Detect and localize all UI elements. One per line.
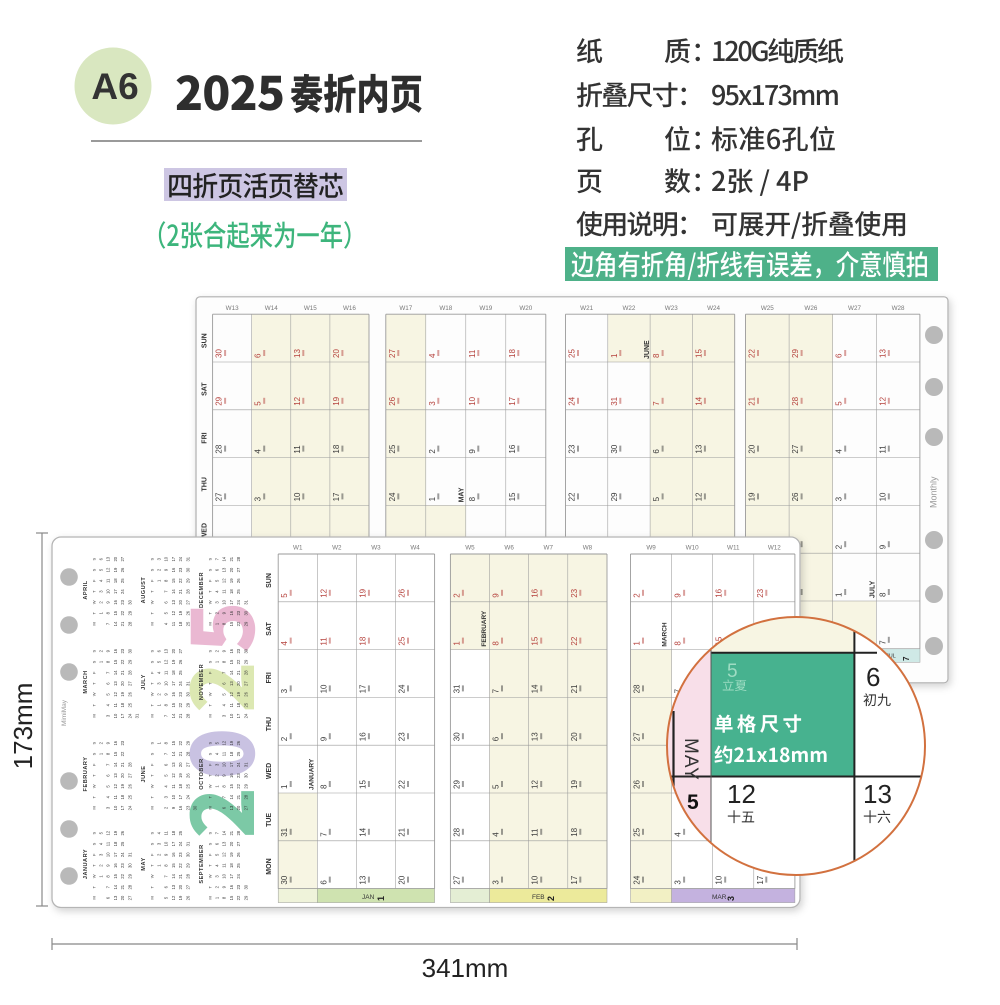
svg-text:30: 30 — [215, 349, 224, 358]
svg-text:18: 18 — [120, 794, 125, 799]
svg-text:12: 12 — [171, 610, 176, 615]
svg-text:25: 25 — [243, 702, 248, 707]
svg-text:25: 25 — [127, 794, 132, 799]
svg-text:18: 18 — [178, 621, 183, 626]
svg-text:5: 5 — [835, 401, 844, 406]
svg-text:S: S — [92, 832, 97, 835]
svg-text:12: 12 — [878, 396, 887, 405]
svg-text:15: 15 — [229, 621, 234, 626]
svg-text:18: 18 — [113, 841, 118, 846]
svg-text:S: S — [208, 568, 213, 571]
svg-text:17: 17 — [113, 852, 118, 857]
svg-text:22: 22 — [570, 636, 579, 645]
svg-text:28: 28 — [243, 794, 248, 799]
svg-text:29: 29 — [610, 492, 619, 501]
svg-text:14: 14 — [113, 621, 118, 626]
svg-text:M: M — [208, 896, 213, 899]
svg-text:1: 1 — [280, 784, 289, 789]
svg-text:21: 21 — [236, 794, 241, 799]
svg-text:27: 27 — [185, 599, 190, 604]
svg-text:2: 2 — [280, 736, 289, 741]
svg-text:M: M — [150, 622, 155, 625]
svg-text:21: 21 — [178, 589, 183, 594]
svg-text:22: 22 — [178, 740, 183, 745]
svg-text:22: 22 — [178, 578, 183, 583]
svg-text:M: M — [150, 714, 155, 717]
svg-text:20: 20 — [113, 556, 118, 561]
svg-text:13: 13 — [106, 556, 111, 561]
svg-text:19: 19 — [229, 852, 234, 857]
svg-text:1: 1 — [428, 496, 437, 501]
svg-text:11: 11 — [531, 828, 540, 837]
svg-text:11: 11 — [468, 349, 477, 358]
svg-text:27: 27 — [633, 732, 642, 741]
svg-text:20: 20 — [398, 875, 407, 884]
svg-text:19: 19 — [748, 492, 757, 501]
svg-text:5: 5 — [492, 784, 501, 789]
svg-text:15: 15 — [531, 636, 540, 645]
svg-text:24: 24 — [388, 492, 397, 501]
svg-text:15: 15 — [229, 659, 234, 664]
svg-text:18: 18 — [508, 349, 517, 358]
svg-text:18: 18 — [358, 636, 367, 645]
svg-text:29: 29 — [185, 578, 190, 583]
svg-text:26: 26 — [236, 852, 241, 857]
svg-text:S: S — [92, 558, 97, 561]
svg-text:23: 23 — [120, 648, 125, 653]
svg-text:24: 24 — [178, 841, 183, 846]
svg-text:9: 9 — [674, 593, 683, 598]
svg-text:27: 27 — [236, 841, 241, 846]
svg-text:29: 29 — [185, 740, 190, 745]
svg-text:20: 20 — [178, 884, 183, 889]
svg-text:10: 10 — [293, 492, 302, 501]
svg-text:W20: W20 — [519, 305, 532, 312]
svg-text:AUGUST: AUGUST — [141, 577, 147, 604]
svg-text:S: S — [150, 558, 155, 561]
svg-text:18: 18 — [178, 783, 183, 788]
svg-text:W22: W22 — [622, 305, 635, 312]
svg-text:M: M — [150, 896, 155, 899]
svg-text:W: W — [92, 600, 97, 604]
svg-text:20: 20 — [229, 841, 234, 846]
svg-text:10: 10 — [222, 599, 227, 604]
svg-text:18: 18 — [229, 751, 234, 756]
svg-text:21: 21 — [236, 670, 241, 675]
svg-text:18: 18 — [120, 702, 125, 707]
svg-text:17: 17 — [332, 492, 341, 501]
svg-text:10: 10 — [531, 875, 540, 884]
svg-text:21: 21 — [120, 762, 125, 767]
svg-text:17: 17 — [570, 875, 579, 884]
svg-text:19: 19 — [178, 895, 183, 900]
svg-text:14: 14 — [358, 827, 367, 836]
svg-text:4: 4 — [254, 449, 263, 454]
svg-text:22: 22 — [568, 492, 577, 501]
svg-text:17: 17 — [113, 589, 118, 594]
svg-text:S: S — [150, 650, 155, 653]
svg-text:MAY: MAY — [680, 738, 701, 781]
svg-text:31: 31 — [185, 841, 190, 846]
svg-text:8: 8 — [674, 641, 683, 646]
svg-text:31: 31 — [243, 599, 248, 604]
svg-text:28: 28 — [185, 751, 190, 756]
svg-text:W28: W28 — [892, 305, 905, 312]
svg-text:21: 21 — [178, 751, 183, 756]
svg-text:30: 30 — [280, 875, 289, 884]
svg-text:W: W — [208, 784, 213, 788]
svg-text:21: 21 — [748, 396, 757, 405]
svg-text:25: 25 — [568, 349, 577, 358]
svg-text:31: 31 — [127, 852, 132, 857]
svg-text:JANUARY: JANUARY — [309, 758, 316, 790]
svg-text:13: 13 — [863, 779, 892, 809]
svg-text:M: M — [92, 714, 97, 717]
svg-text:W19: W19 — [479, 305, 492, 312]
svg-text:17: 17 — [171, 841, 176, 846]
svg-text:9: 9 — [468, 449, 477, 454]
svg-text:22: 22 — [120, 751, 125, 756]
svg-text:2: 2 — [835, 544, 844, 549]
svg-text:14: 14 — [113, 884, 118, 889]
svg-text:13: 13 — [113, 681, 118, 686]
svg-text:6: 6 — [835, 353, 844, 358]
svg-text:27: 27 — [243, 681, 248, 686]
svg-text:4: 4 — [835, 449, 844, 454]
svg-text:12: 12 — [222, 852, 227, 857]
svg-text:17: 17 — [120, 805, 125, 810]
svg-text:M: M — [150, 806, 155, 809]
svg-text:THU: THU — [202, 477, 209, 491]
svg-text:MARCH: MARCH — [662, 622, 669, 646]
svg-text:28: 28 — [127, 884, 132, 889]
svg-text:20: 20 — [120, 681, 125, 686]
svg-text:28: 28 — [127, 621, 132, 626]
svg-text:30: 30 — [243, 773, 248, 778]
svg-text:11: 11 — [229, 702, 234, 707]
svg-text:10: 10 — [878, 492, 887, 501]
svg-text:16: 16 — [531, 588, 540, 597]
svg-text:17: 17 — [229, 599, 234, 604]
svg-text:14: 14 — [222, 556, 227, 561]
svg-text:12: 12 — [319, 588, 328, 597]
svg-text:S: S — [150, 742, 155, 745]
svg-text:W: W — [208, 600, 213, 604]
svg-text:28: 28 — [215, 444, 224, 453]
svg-text:S: S — [92, 650, 97, 653]
svg-text:27: 27 — [127, 773, 132, 778]
svg-text:25: 25 — [236, 863, 241, 868]
svg-text:7: 7 — [492, 688, 501, 693]
svg-text:16: 16 — [113, 599, 118, 604]
svg-text:26: 26 — [120, 830, 125, 835]
svg-text:31: 31 — [280, 827, 289, 836]
svg-text:FEBRUARY: FEBRUARY — [481, 610, 488, 647]
svg-text:10: 10 — [222, 873, 227, 878]
svg-text:28: 28 — [236, 556, 241, 561]
svg-text:23: 23 — [236, 648, 241, 653]
svg-text:13: 13 — [222, 841, 227, 846]
svg-text:25: 25 — [236, 751, 241, 756]
svg-text:14: 14 — [171, 713, 176, 718]
svg-text:10: 10 — [164, 556, 169, 561]
svg-text:MAR: MAR — [712, 894, 727, 901]
svg-text:24: 24 — [178, 556, 183, 561]
svg-text:5: 5 — [727, 661, 738, 682]
svg-text:W15: W15 — [304, 305, 317, 312]
svg-text:17: 17 — [236, 713, 241, 718]
svg-text:W10: W10 — [686, 545, 699, 552]
svg-text:10: 10 — [222, 762, 227, 767]
svg-text:3: 3 — [674, 880, 683, 885]
svg-text:6: 6 — [492, 736, 501, 741]
svg-text:APRIL: APRIL — [83, 580, 89, 599]
svg-text:26: 26 — [791, 492, 800, 501]
svg-text:10: 10 — [113, 805, 118, 810]
svg-text:31: 31 — [452, 684, 461, 693]
svg-text:27: 27 — [243, 805, 248, 810]
svg-text:M: M — [92, 896, 97, 899]
svg-text:S: S — [150, 842, 155, 845]
svg-text:WED: WED — [266, 763, 273, 779]
svg-text:25: 25 — [388, 444, 397, 453]
svg-text:W: W — [92, 692, 97, 696]
svg-text:OCTOBER: OCTOBER — [199, 758, 205, 789]
svg-text:341mm: 341mm — [422, 953, 509, 983]
svg-text:S: S — [92, 842, 97, 845]
svg-text:S: S — [150, 660, 155, 663]
svg-text:MAY: MAY — [141, 857, 147, 870]
svg-text:24: 24 — [398, 684, 407, 693]
svg-text:24: 24 — [633, 875, 642, 884]
svg-text:W: W — [208, 692, 213, 696]
svg-text:5: 5 — [652, 496, 661, 501]
svg-text:10: 10 — [319, 684, 328, 693]
svg-text:30: 30 — [452, 732, 461, 741]
svg-text:12: 12 — [694, 492, 703, 501]
svg-text:16: 16 — [113, 648, 118, 653]
svg-text:W: W — [150, 600, 155, 604]
svg-text:27: 27 — [452, 875, 461, 884]
svg-text:19: 19 — [229, 578, 234, 583]
svg-text:28: 28 — [236, 830, 241, 835]
svg-text:17: 17 — [171, 681, 176, 686]
svg-text:S: S — [208, 650, 213, 653]
svg-text:4: 4 — [428, 353, 437, 358]
svg-text:11: 11 — [222, 751, 227, 756]
svg-text:12: 12 — [222, 740, 227, 745]
svg-text:JUNE: JUNE — [141, 766, 147, 783]
svg-text:25: 25 — [633, 827, 642, 836]
svg-text:26: 26 — [185, 610, 190, 615]
svg-text:15: 15 — [229, 783, 234, 788]
svg-text:26: 26 — [398, 588, 407, 597]
svg-text:13: 13 — [113, 895, 118, 900]
svg-text:30: 30 — [243, 884, 248, 889]
svg-text:24: 24 — [120, 589, 125, 594]
svg-text:8: 8 — [878, 592, 887, 597]
svg-text:18: 18 — [171, 670, 176, 675]
svg-text:10: 10 — [164, 841, 169, 846]
svg-text:20: 20 — [178, 599, 183, 604]
svg-text:21: 21 — [178, 713, 183, 718]
svg-text:27: 27 — [178, 648, 183, 653]
svg-text:W7: W7 — [544, 545, 554, 552]
svg-text:SEPTEMBER: SEPTEMBER — [199, 844, 205, 883]
svg-text:15: 15 — [171, 702, 176, 707]
svg-text:13: 13 — [171, 884, 176, 889]
svg-text:W9: W9 — [646, 545, 656, 552]
svg-text:20: 20 — [229, 567, 234, 572]
svg-text:13: 13 — [293, 349, 302, 358]
svg-text:11: 11 — [171, 621, 176, 626]
svg-text:20: 20 — [748, 444, 757, 453]
svg-text:10: 10 — [468, 396, 477, 405]
svg-text:30: 30 — [185, 567, 190, 572]
svg-text:29: 29 — [127, 659, 132, 664]
svg-text:26: 26 — [185, 773, 190, 778]
svg-text:13: 13 — [229, 805, 234, 810]
svg-text:17: 17 — [229, 762, 234, 767]
svg-text:11: 11 — [878, 445, 887, 454]
svg-text:22: 22 — [120, 873, 125, 878]
svg-text:13: 13 — [164, 648, 169, 653]
svg-text:15: 15 — [171, 740, 176, 745]
svg-text:W4: W4 — [410, 545, 420, 552]
svg-text:19: 19 — [113, 567, 118, 572]
svg-text:3: 3 — [428, 401, 437, 406]
svg-text:W8: W8 — [583, 545, 593, 552]
svg-text:20: 20 — [120, 773, 125, 778]
svg-text:11: 11 — [293, 445, 302, 454]
svg-text:14: 14 — [694, 396, 703, 405]
svg-text:10: 10 — [164, 681, 169, 686]
svg-text:THU: THU — [266, 717, 273, 731]
svg-text:JULY: JULY — [141, 674, 147, 690]
svg-text:31: 31 — [610, 396, 619, 405]
svg-text:23: 23 — [178, 852, 183, 857]
svg-text:21: 21 — [120, 670, 125, 675]
svg-text:14: 14 — [531, 684, 540, 693]
svg-text:19: 19 — [120, 783, 125, 788]
svg-text:17: 17 — [756, 875, 765, 884]
svg-text:29: 29 — [452, 780, 461, 789]
svg-text:W21: W21 — [580, 305, 593, 312]
svg-text:W24: W24 — [707, 305, 720, 312]
svg-text:18: 18 — [570, 827, 579, 836]
svg-text:30: 30 — [610, 444, 619, 453]
svg-text:14: 14 — [113, 670, 118, 675]
svg-text:23: 23 — [756, 588, 765, 597]
svg-text:7: 7 — [878, 640, 887, 645]
svg-text:14: 14 — [229, 794, 234, 799]
svg-text:W3: W3 — [371, 545, 381, 552]
svg-text:16: 16 — [113, 740, 118, 745]
svg-text:W: W — [92, 874, 97, 878]
svg-text:23: 23 — [178, 691, 183, 696]
svg-text:4: 4 — [674, 832, 683, 837]
svg-text:18: 18 — [171, 830, 176, 835]
svg-text:30: 30 — [185, 691, 190, 696]
svg-text:W: W — [208, 874, 213, 878]
svg-text:26: 26 — [243, 691, 248, 696]
svg-text:30: 30 — [243, 610, 248, 615]
svg-text:19: 19 — [570, 780, 579, 789]
svg-text:31: 31 — [135, 713, 140, 718]
svg-text:13: 13 — [358, 875, 367, 884]
svg-text:W25: W25 — [761, 305, 774, 312]
svg-text:23: 23 — [236, 610, 241, 615]
svg-text:SUN: SUN — [202, 333, 209, 348]
svg-text:22: 22 — [236, 895, 241, 900]
svg-text:S: S — [92, 752, 97, 755]
svg-text:6: 6 — [254, 353, 263, 358]
svg-text:S: S — [150, 568, 155, 571]
svg-text:11: 11 — [222, 863, 227, 868]
svg-text:22: 22 — [120, 659, 125, 664]
svg-text:10: 10 — [106, 589, 111, 594]
svg-text:M: M — [208, 806, 213, 809]
svg-text:W16: W16 — [343, 305, 356, 312]
svg-text:14: 14 — [113, 762, 118, 767]
svg-text:28: 28 — [185, 873, 190, 878]
svg-text:26: 26 — [178, 659, 183, 664]
svg-text:10: 10 — [106, 852, 111, 857]
svg-text:27: 27 — [236, 567, 241, 572]
svg-text:W13: W13 — [226, 305, 239, 312]
svg-text:22: 22 — [748, 349, 757, 358]
svg-text:17: 17 — [171, 556, 176, 561]
svg-text:FEBRUARY: FEBRUARY — [83, 757, 89, 792]
svg-text:14: 14 — [222, 830, 227, 835]
svg-text:22: 22 — [120, 610, 125, 615]
svg-text:S: S — [92, 660, 97, 663]
svg-text:27: 27 — [185, 762, 190, 767]
svg-text:25: 25 — [178, 670, 183, 675]
svg-text:31: 31 — [243, 762, 248, 767]
svg-text:21: 21 — [120, 884, 125, 889]
svg-text:26: 26 — [127, 691, 132, 696]
svg-text:7: 7 — [902, 656, 911, 661]
svg-text:21: 21 — [120, 621, 125, 626]
svg-text:14: 14 — [171, 751, 176, 756]
svg-text:NOVEMBER: NOVEMBER — [199, 664, 205, 700]
svg-text:16: 16 — [229, 773, 234, 778]
svg-text:24: 24 — [178, 681, 183, 686]
svg-text:19: 19 — [332, 396, 341, 405]
svg-text:21: 21 — [398, 827, 407, 836]
svg-text:23: 23 — [570, 588, 579, 597]
svg-text:10: 10 — [171, 794, 176, 799]
svg-text:27: 27 — [127, 895, 132, 900]
svg-text:16: 16 — [715, 588, 724, 597]
svg-text:S: S — [208, 842, 213, 845]
svg-text:30: 30 — [243, 648, 248, 653]
svg-text:28: 28 — [185, 589, 190, 594]
svg-text:13: 13 — [694, 444, 703, 453]
svg-text:29: 29 — [243, 783, 248, 788]
svg-text:FRI: FRI — [202, 432, 209, 443]
svg-text:18: 18 — [229, 863, 234, 868]
svg-text:S: S — [208, 742, 213, 745]
svg-text:10: 10 — [715, 875, 724, 884]
svg-text:19: 19 — [178, 610, 183, 615]
svg-text:21: 21 — [229, 830, 234, 835]
svg-text:28: 28 — [633, 684, 642, 693]
svg-text:17: 17 — [178, 794, 183, 799]
svg-text:W: W — [92, 784, 97, 788]
svg-text:26: 26 — [236, 578, 241, 583]
